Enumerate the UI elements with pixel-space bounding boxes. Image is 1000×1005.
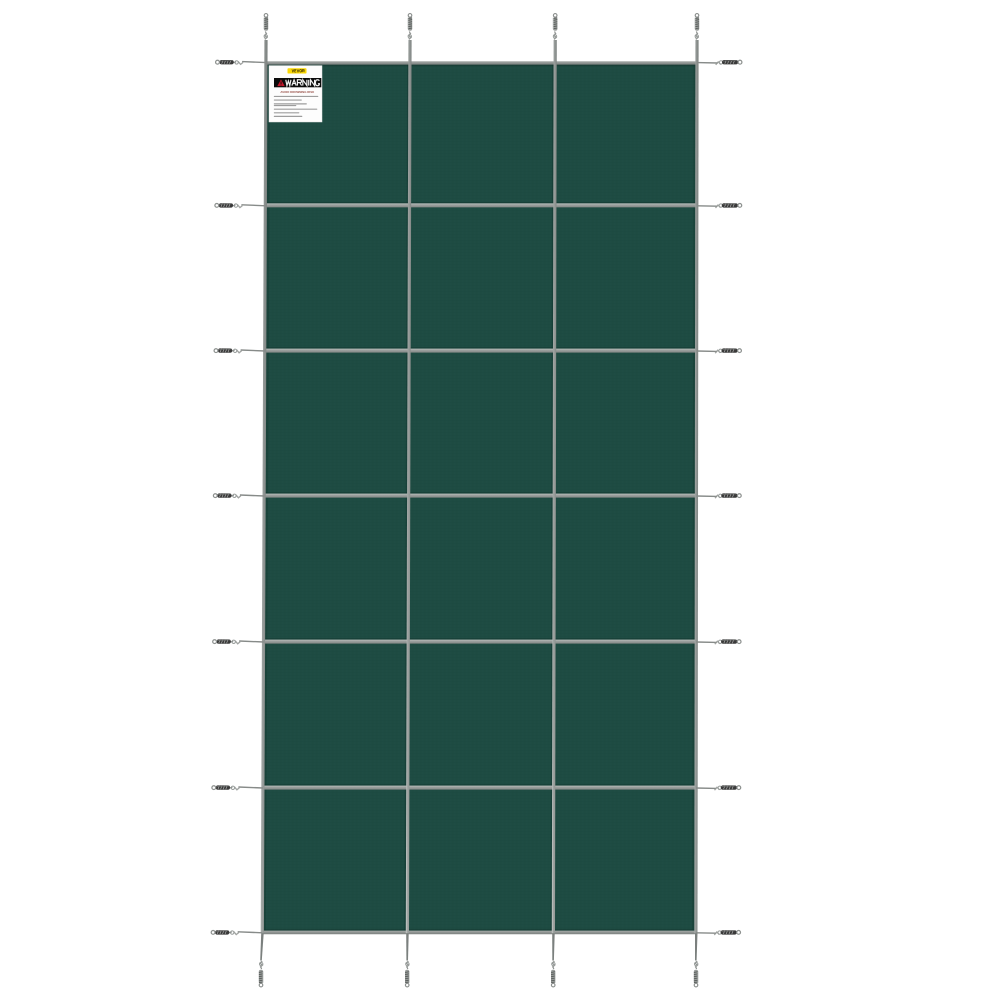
- svg-text:AVOID DROWNING RISK: AVOID DROWNING RISK: [280, 90, 315, 94]
